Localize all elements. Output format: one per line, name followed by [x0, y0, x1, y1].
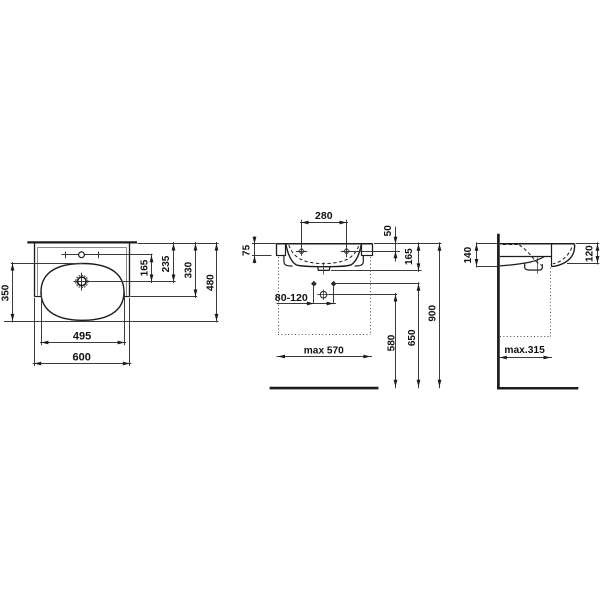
svg-text:600: 600 [73, 352, 91, 364]
svg-text:900: 900 [428, 305, 439, 322]
svg-text:580: 580 [387, 334, 398, 351]
svg-text:650: 650 [407, 329, 418, 346]
svg-text:max 570: max 570 [304, 346, 344, 357]
svg-text:50: 50 [383, 225, 394, 237]
svg-text:max.315: max.315 [504, 345, 545, 356]
svg-text:280: 280 [315, 210, 333, 222]
svg-text:120: 120 [584, 245, 595, 262]
svg-text:75: 75 [241, 244, 252, 256]
svg-text:80-120: 80-120 [275, 293, 308, 304]
svg-text:480: 480 [205, 274, 216, 291]
svg-text:235: 235 [161, 255, 172, 272]
svg-text:165: 165 [404, 248, 415, 265]
svg-text:140: 140 [463, 246, 474, 263]
svg-text:495: 495 [73, 331, 91, 343]
svg-text:330: 330 [183, 261, 194, 278]
svg-text:165: 165 [139, 259, 150, 276]
svg-text:350: 350 [0, 284, 11, 301]
